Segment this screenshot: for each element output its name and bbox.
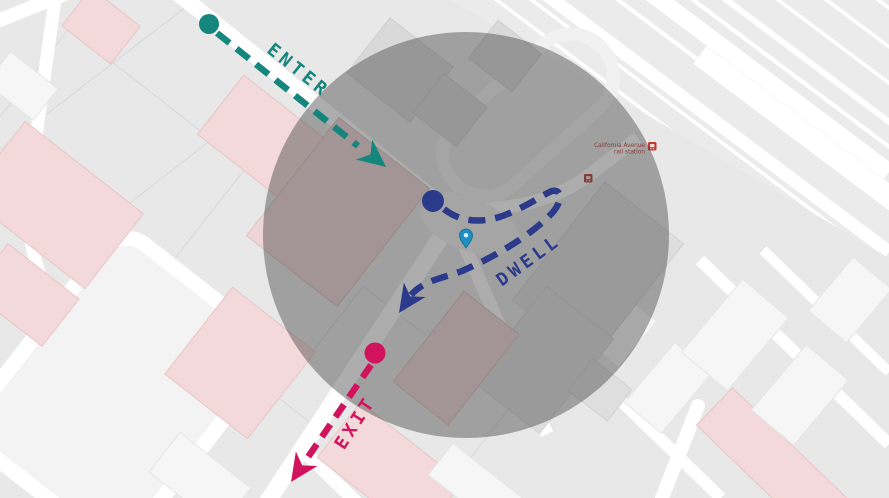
dwell-point-dot — [422, 190, 444, 212]
enter-origin-dot — [199, 14, 219, 34]
map-canvas: California Avenue rail station — [0, 0, 889, 498]
exit-origin-dot — [365, 343, 386, 364]
